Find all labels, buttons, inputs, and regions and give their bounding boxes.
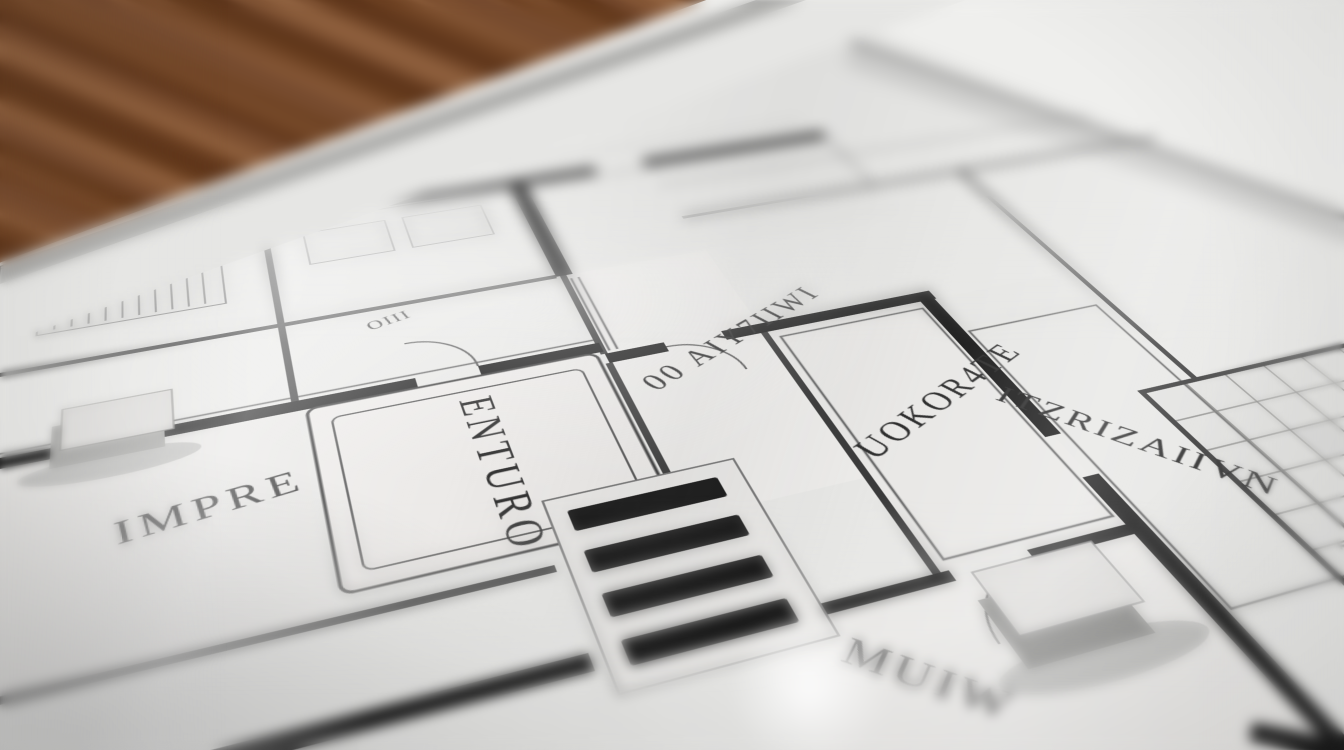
photo-scene: IMPRE ENTURO 00 AIY7IIWI UOKOR4TE ITZRIZ… — [0, 0, 1344, 750]
vignette-overlay — [0, 0, 1344, 750]
